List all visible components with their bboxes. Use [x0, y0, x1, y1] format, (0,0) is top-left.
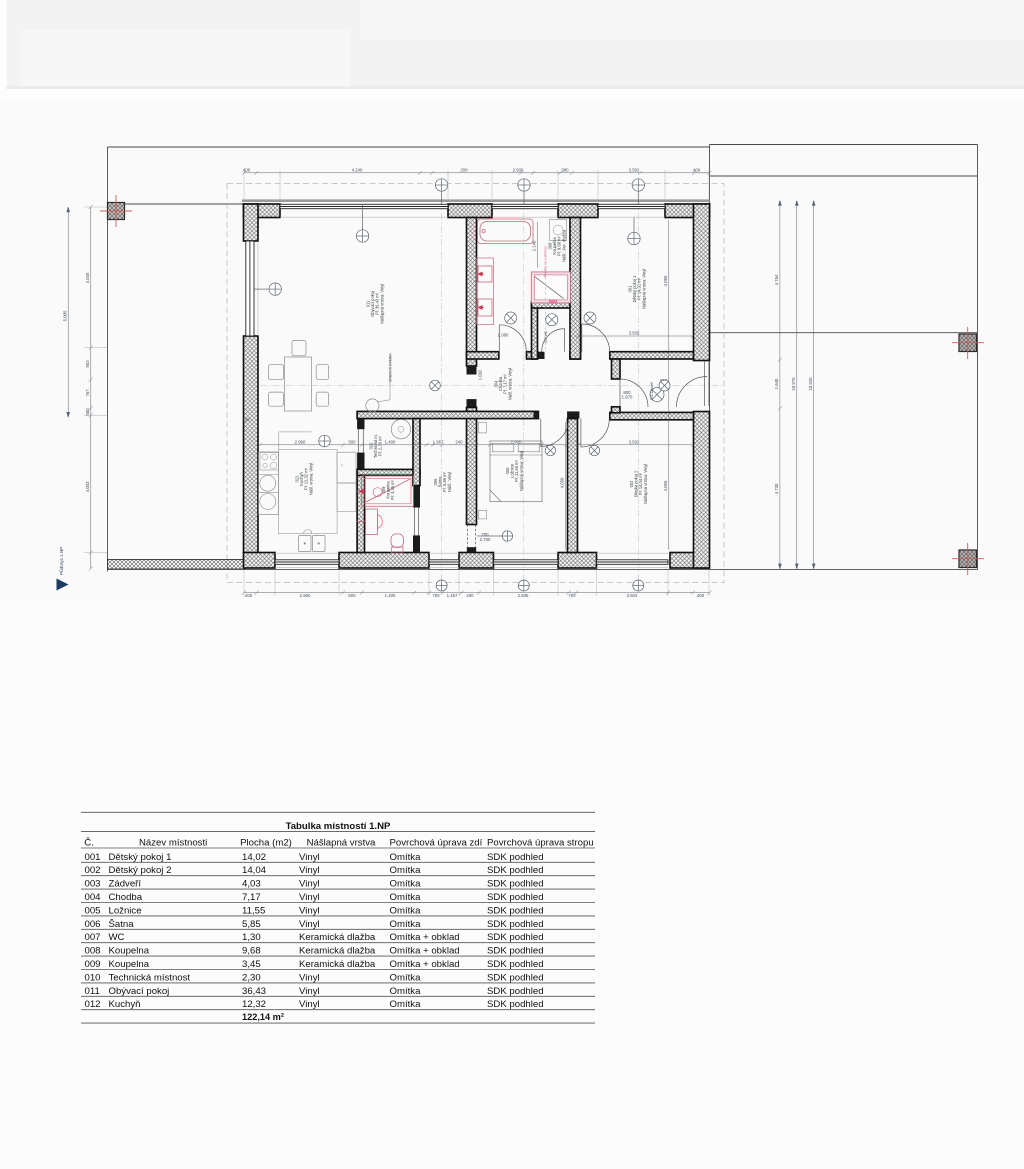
- svg-text:Plocha (m2): Plocha (m2): [240, 837, 292, 848]
- svg-text:Obývací pokoj: Obývací pokoj: [109, 986, 170, 997]
- svg-text:Omítka: Omítka: [390, 986, 422, 997]
- svg-text:Vinyl: Vinyl: [299, 986, 320, 997]
- svg-text:Nášlapná vrstva: Vinyl: Nášlapná vrstva: Vinyl: [519, 451, 524, 492]
- svg-text:2.960: 2.960: [300, 593, 311, 598]
- svg-text:WC: WC: [109, 932, 125, 943]
- svg-text:2.960: 2.960: [295, 439, 306, 444]
- svg-text:Ložnice: Ložnice: [109, 905, 142, 916]
- svg-text:Kuchyň: Kuchyň: [109, 999, 141, 1010]
- svg-text:SDK podhled: SDK podhled: [487, 959, 544, 970]
- svg-text:Koupelna: Koupelna: [109, 959, 150, 970]
- svg-text:Vinyl: Vinyl: [299, 852, 320, 863]
- svg-text:Omítka + obklad: Omítka + obklad: [390, 946, 460, 957]
- svg-text:1.400: 1.400: [385, 593, 396, 598]
- svg-text:3.502: 3.502: [629, 167, 640, 172]
- svg-text:SDK podhled: SDK podhled: [487, 986, 544, 997]
- svg-text:2.140: 2.140: [532, 240, 537, 251]
- svg-text:1.400: 1.400: [385, 439, 396, 444]
- svg-text:10.925: 10.925: [808, 377, 813, 391]
- svg-text:5.005: 5.005: [63, 310, 68, 321]
- svg-text:1.970: 1.970: [622, 395, 633, 400]
- svg-text:.400: .400: [242, 167, 251, 172]
- svg-text:Vinyl: Vinyl: [299, 892, 320, 903]
- svg-text:SDK podhled: SDK podhled: [487, 879, 544, 890]
- svg-text:Pl: 3,45 m²: Pl: 3,45 m²: [390, 479, 395, 499]
- svg-text:006: 006: [85, 919, 101, 930]
- svg-text:1.640: 1.640: [774, 378, 779, 389]
- svg-text:Pračka se sušičkou: Pračka se sušičkou: [544, 246, 548, 277]
- svg-text:1.002: 1.002: [478, 369, 483, 380]
- svg-text:Koupelna: Koupelna: [109, 946, 150, 957]
- svg-text:Nášlapná vrstva: Vinyl: Nášlapná vrstva: Vinyl: [641, 269, 646, 310]
- svg-text:903: 903: [85, 360, 90, 368]
- svg-text:Vinyl: Vinyl: [299, 972, 320, 983]
- svg-text:700: 700: [432, 593, 440, 598]
- svg-text:11,55: 11,55: [242, 905, 265, 916]
- svg-text:Nášlapná vrstva: Vinyl: Nášlapná vrstva: Vinyl: [379, 284, 384, 325]
- svg-text:4.056: 4.056: [663, 275, 668, 286]
- svg-text:3.502: 3.502: [629, 331, 640, 336]
- svg-text:Vinyl: Vinyl: [299, 865, 320, 876]
- svg-text:3.502: 3.502: [627, 593, 638, 598]
- svg-text:2,30: 2,30: [242, 972, 261, 983]
- svg-text:4.056: 4.056: [560, 477, 565, 488]
- svg-text:005: 005: [85, 905, 101, 916]
- svg-text:007: 007: [85, 932, 101, 943]
- svg-text:Č.: Č.: [84, 837, 94, 848]
- svg-text:3,45: 3,45: [242, 959, 261, 970]
- svg-text:Keramická dlažba: Keramická dlažba: [299, 932, 376, 943]
- svg-text:4.056: 4.056: [663, 480, 668, 491]
- svg-text:500: 500: [85, 408, 90, 416]
- svg-text:Keramická dlažba: Keramická dlažba: [299, 959, 376, 970]
- svg-text:.400: .400: [692, 167, 701, 172]
- svg-text:Dětský pokoj 1: Dětský pokoj 1: [109, 852, 172, 863]
- svg-text:SDK podhled: SDK podhled: [487, 892, 544, 903]
- svg-text:3.502: 3.502: [629, 439, 640, 444]
- svg-text:011: 011: [85, 986, 100, 997]
- svg-text:Vinyl: Vinyl: [299, 905, 320, 916]
- svg-text:4,03: 4,03: [242, 879, 261, 890]
- svg-text:2.920: 2.920: [511, 439, 522, 444]
- svg-text:200: 200: [466, 593, 474, 598]
- svg-text:Šatna: Šatna: [109, 919, 135, 930]
- svg-text:2.930: 2.930: [513, 167, 524, 172]
- svg-text:Nášl.: Ker. dlažba: Nášl.: Ker. dlažba: [561, 229, 566, 262]
- svg-text:003: 003: [85, 879, 101, 890]
- svg-text:SDK podhled: SDK podhled: [487, 972, 544, 983]
- svg-text:5,85: 5,85: [242, 919, 261, 930]
- svg-text:Omítka: Omítka: [390, 919, 422, 930]
- svg-text:012: 012: [85, 999, 101, 1010]
- svg-text:4.730: 4.730: [774, 483, 779, 494]
- svg-text:Nášl. vrstva: Vinyl: Nášl. vrstva: Vinyl: [507, 368, 512, 401]
- svg-text:7,17: 7,17: [242, 892, 261, 903]
- svg-text:KRBOVÁ KAMNA: KRBOVÁ KAMNA: [389, 353, 393, 382]
- svg-text:4.764: 4.764: [774, 274, 779, 285]
- svg-text:36,43: 36,43: [242, 986, 266, 997]
- svg-text:010: 010: [85, 972, 101, 983]
- svg-text:Omítka: Omítka: [390, 972, 422, 983]
- svg-text:.400: .400: [696, 593, 705, 598]
- svg-text:Vinyl: Vinyl: [299, 999, 320, 1010]
- svg-text:SDK podhled: SDK podhled: [487, 905, 544, 916]
- svg-text:Omítka + obklad: Omítka + obklad: [390, 959, 460, 970]
- svg-text:Omítka: Omítka: [390, 999, 422, 1010]
- svg-text:12,32: 12,32: [242, 999, 266, 1010]
- svg-text:Název místnosti: Název místnosti: [139, 837, 207, 848]
- svg-text:1.457: 1.457: [447, 593, 458, 598]
- svg-text:9,68: 9,68: [242, 946, 261, 957]
- svg-text:SDK podhled: SDK podhled: [487, 946, 544, 957]
- svg-text:500: 500: [348, 439, 356, 444]
- svg-text:Povrchová úprava zdí: Povrchová úprava zdí: [390, 837, 483, 848]
- svg-text:Pl: 2,30 m²: Pl: 2,30 m²: [378, 435, 383, 455]
- svg-text:007 WC: 007 WC: [544, 330, 548, 343]
- svg-text:Nášl.: Vinyl: Nášl.: Vinyl: [447, 472, 452, 492]
- svg-text:4.003: 4.003: [85, 481, 90, 492]
- svg-text:122,14 m²: 122,14 m²: [242, 1012, 284, 1022]
- svg-text:Omítka: Omítka: [390, 892, 422, 903]
- svg-text:Vinyl: Vinyl: [299, 879, 320, 890]
- svg-text:SDK podhled: SDK podhled: [487, 999, 544, 1010]
- svg-text:4.035: 4.035: [85, 272, 90, 283]
- svg-text:SDK podhled: SDK podhled: [487, 852, 544, 863]
- svg-text:900: 900: [549, 300, 558, 306]
- svg-text:4.240: 4.240: [352, 167, 363, 172]
- svg-text:SDK podhled: SDK podhled: [487, 932, 544, 943]
- svg-text:1.967: 1.967: [433, 439, 444, 444]
- svg-text:Keramická dlažba: Keramická dlažba: [299, 946, 376, 957]
- svg-text:002: 002: [85, 865, 101, 876]
- svg-text:Dětský pokoj 2: Dětský pokoj 2: [109, 865, 172, 876]
- svg-text:2.700: 2.700: [480, 537, 491, 542]
- svg-text:Povrchová úprava stropu: Povrchová úprava stropu: [487, 837, 594, 848]
- svg-text:700: 700: [568, 593, 576, 598]
- svg-text:Vinyl: Vinyl: [299, 919, 320, 930]
- svg-text:008: 008: [85, 946, 101, 957]
- svg-text:1.080: 1.080: [498, 332, 509, 337]
- svg-text:14,04: 14,04: [242, 865, 267, 876]
- svg-text:.400: .400: [244, 593, 253, 598]
- svg-text:009: 009: [85, 959, 101, 970]
- svg-text:14,02: 14,02: [242, 852, 266, 863]
- svg-text:380: 380: [561, 167, 569, 172]
- svg-text:Půdorys 1.NP: Půdorys 1.NP: [58, 547, 64, 575]
- svg-text:Omítka: Omítka: [390, 865, 422, 876]
- svg-text:Zádveří: Zádveří: [109, 879, 142, 890]
- svg-text:001: 001: [85, 852, 101, 863]
- svg-text:Omítka: Omítka: [390, 879, 422, 890]
- svg-text:SDK podhled: SDK podhled: [487, 865, 544, 876]
- svg-text:200: 200: [460, 167, 468, 172]
- svg-text:500: 500: [348, 593, 356, 598]
- svg-text:Omítka + obklad: Omítka + obklad: [390, 932, 460, 943]
- svg-text:Tabulka místností 1.NP: Tabulka místností 1.NP: [286, 821, 391, 832]
- svg-text:Omítka: Omítka: [390, 905, 422, 916]
- svg-text:1,30: 1,30: [242, 932, 261, 943]
- svg-text:10.975: 10.975: [791, 377, 796, 391]
- svg-text:Nášlapná vrstva: Vinyl: Nášlapná vrstva: Vinyl: [643, 464, 648, 505]
- svg-text:767: 767: [85, 389, 90, 397]
- svg-text:240: 240: [242, 417, 250, 422]
- svg-text:2.835: 2.835: [518, 593, 529, 598]
- svg-text:240: 240: [455, 439, 463, 444]
- svg-text:Chodba: Chodba: [109, 892, 143, 903]
- svg-text:Nášlapná vrstva: Nášlapná vrstva: [307, 837, 376, 848]
- svg-text:Technická místnost: Technická místnost: [109, 972, 191, 983]
- svg-text:Nášl. vrstva: Vinyl: Nášl. vrstva: Vinyl: [308, 463, 313, 496]
- svg-text:004: 004: [85, 892, 102, 903]
- svg-text:Omítka: Omítka: [390, 852, 422, 863]
- svg-text:SDK podhled: SDK podhled: [487, 919, 544, 930]
- svg-text:003 Zádveří: 003 Zádveří: [650, 382, 654, 400]
